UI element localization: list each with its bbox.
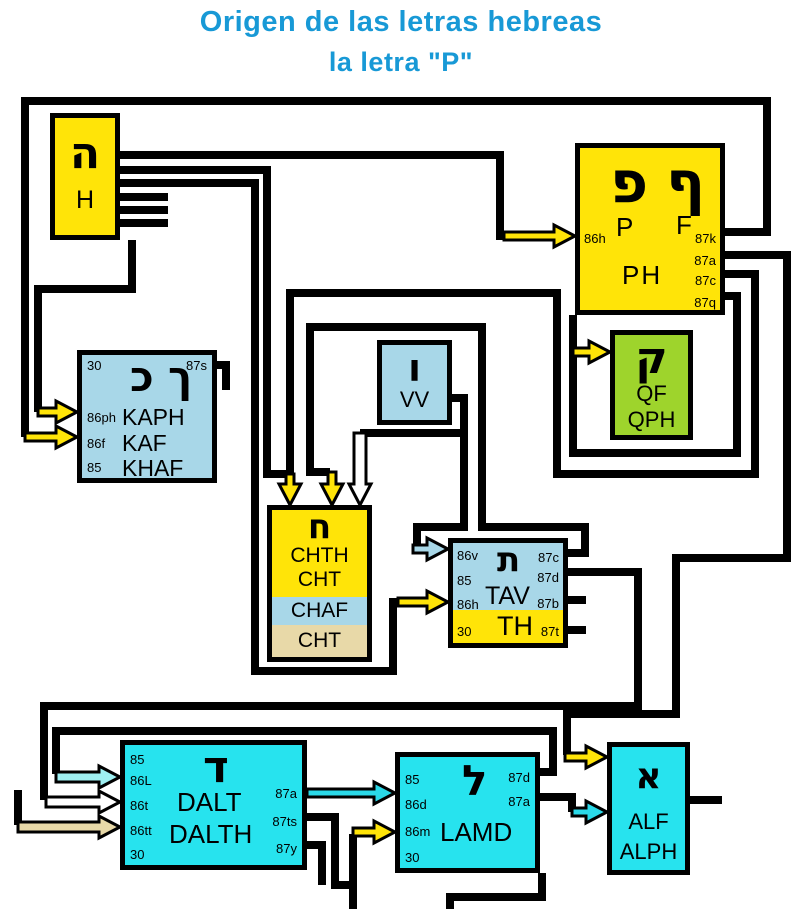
port-30: 30 <box>87 359 101 372</box>
node-alf: א ALF ALPH <box>607 742 690 875</box>
label-tav: TAV <box>485 583 530 609</box>
label-dalth: DALTH <box>169 821 252 848</box>
flow-arrow <box>321 472 343 505</box>
hebrew-letter-kaf-final: ך <box>168 355 192 399</box>
node-vv-label: VV <box>400 387 429 413</box>
flow-arrow <box>565 746 607 768</box>
node-lamd: ל LAMD 85 86d 86m 30 87d 87a <box>395 752 540 873</box>
flow-arrow <box>25 426 77 448</box>
hebrew-letter-tav: ת <box>497 543 520 579</box>
connector-line <box>307 845 322 885</box>
port-86L: 86L <box>130 774 152 787</box>
node-qf: ק QF QPH <box>610 330 693 440</box>
port-30: 30 <box>130 848 144 861</box>
port-86ph: 86ph <box>87 411 116 424</box>
port-85: 85 <box>457 574 471 587</box>
label-alph: ALPH <box>620 839 677 865</box>
hebrew-letter-het: ח <box>308 510 331 544</box>
hebrew-letter-dalet: ד <box>203 745 229 791</box>
label-th: TH <box>497 612 533 640</box>
node-h: ה H <box>50 113 120 240</box>
port-85: 85 <box>130 753 144 766</box>
chth-tan-band: CHT <box>272 625 367 657</box>
node-vv: ו VV <box>377 340 452 425</box>
port-87a: 87a <box>275 787 297 800</box>
label-kaph: KAPH <box>122 405 185 429</box>
flow-arrow <box>279 474 301 505</box>
port-86v: 86v <box>457 549 478 562</box>
label-kaf: KAF <box>122 431 167 455</box>
port-86m: 86m <box>405 825 430 838</box>
diagram-subtitle: la letra "P" <box>0 47 802 78</box>
label-f: F <box>676 212 692 239</box>
port-87c: 87c <box>695 274 716 287</box>
port-86d: 86d <box>405 798 427 811</box>
port-87a: 87a <box>694 254 716 267</box>
node-kaph: 30 87s כ ך 86ph KAPH 86f KAF 85 KHAF <box>77 350 217 483</box>
flow-arrow <box>56 766 120 788</box>
flow-arrow <box>413 538 448 560</box>
flow-arrow <box>573 341 610 363</box>
node-ph: פ ף P F PH 86h 87k 87a 87c 87q <box>575 143 725 315</box>
label-alf: ALF <box>628 809 668 835</box>
label-khaf: KHAF <box>122 456 183 480</box>
flow-arrow <box>353 821 395 843</box>
port-87y: 87y <box>276 842 297 855</box>
flow-arrow <box>398 591 448 613</box>
port-87ts: 87ts <box>272 815 297 828</box>
label-p: P <box>616 214 633 241</box>
hebrew-letter-alef: א <box>635 759 661 795</box>
port-86h: 86h <box>584 232 606 245</box>
flow-arrow <box>307 782 395 804</box>
port-86f: 86f <box>87 437 105 450</box>
flow-arrow <box>38 401 77 423</box>
connector-line <box>217 365 226 390</box>
node-chth: ח CHTH CHT CHAF CHT <box>267 505 372 662</box>
port-87k: 87k <box>695 232 716 245</box>
hebrew-letter-pe-final: ף <box>666 152 705 213</box>
port-85: 85 <box>87 461 101 474</box>
port-86h: 86h <box>457 598 479 611</box>
port-87q: 87q <box>694 296 716 309</box>
port-87a: 87a <box>508 795 530 808</box>
flow-arrow <box>46 791 120 813</box>
port-87d: 87d <box>537 571 559 584</box>
node-dalt: ד DALT DALTH 85 86L 86t 86tt 30 87a 87ts… <box>120 740 307 870</box>
port-30: 30 <box>405 851 419 864</box>
label-chaf: CHAF <box>291 599 348 623</box>
hebrew-letter-pe: פ <box>610 152 648 213</box>
node-h-label: H <box>76 186 94 215</box>
flow-arrow <box>349 433 371 505</box>
label-cht-1: CHT <box>298 568 341 592</box>
port-87c: 87c <box>538 551 559 564</box>
hebrew-letter-kaf: כ <box>130 355 154 399</box>
label-dalt: DALT <box>177 789 242 816</box>
flow-arrow <box>504 225 575 247</box>
label-ph: PH <box>622 262 662 289</box>
connector-line <box>120 155 506 236</box>
diagram-canvas: Origen de las letras hebreas la letra "P… <box>0 0 802 909</box>
port-87d: 87d <box>508 771 530 784</box>
port-86t: 86t <box>130 799 148 812</box>
chth-blue-band: CHAF <box>272 597 367 625</box>
port-87b: 87b <box>537 597 559 610</box>
port-87t: 87t <box>541 625 559 638</box>
flow-arrow <box>18 816 120 838</box>
label-lamd: LAMD <box>440 819 512 846</box>
label-chth: CHTH <box>290 544 348 568</box>
diagram-title: Origen de las letras hebreas <box>0 6 802 39</box>
port-30: 30 <box>457 625 471 638</box>
connector-line <box>307 817 353 885</box>
connector-line <box>450 873 542 909</box>
hebrew-letter-lamed: ל <box>462 759 487 803</box>
node-tav: ת TAV TH 86v 85 86h 30 87c 87d 87b 87t <box>448 538 568 648</box>
port-86tt: 86tt <box>130 824 152 837</box>
hebrew-letter-qof: ק <box>635 337 667 381</box>
hebrew-letter-vav: ו <box>408 349 421 387</box>
hebrew-letter-he: ה <box>70 132 100 176</box>
chth-yellow-band: ח CHTH CHT <box>272 510 367 597</box>
port-85: 85 <box>405 773 419 786</box>
label-cht-2: CHT <box>298 629 341 653</box>
flow-arrow <box>572 801 607 823</box>
label-qph: QPH <box>628 407 676 433</box>
label-qf: QF <box>636 381 667 407</box>
connector-line <box>540 797 572 812</box>
